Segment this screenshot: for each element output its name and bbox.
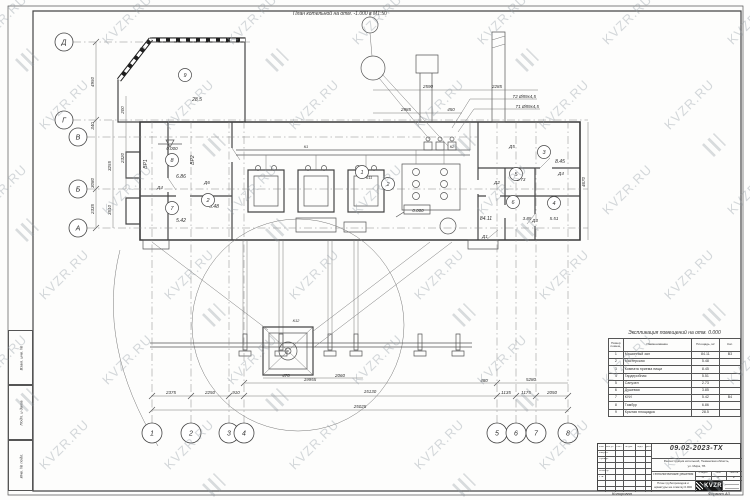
dimension-text: 1135 [501,390,511,395]
plan-label: Д4 [156,185,163,190]
dimension-text: 2060 [334,373,346,378]
axis-label-8: 8 [566,431,570,438]
stage-value: П [695,476,711,480]
axis-label-2: 2 [188,431,193,438]
stage-header: Лист [711,472,726,475]
room-tag-number: 1 [360,170,363,176]
explication-cell: 28.5 [692,410,720,417]
stamp-strip-box: Подп. и дата [8,385,33,440]
kvzr-logo-text: KVZR [704,483,722,489]
revision-header-cell: № док. [623,446,635,449]
axis-label-Б: Б [76,187,81,194]
explication-cell [720,374,741,381]
plan-label: ВР2 [190,155,196,165]
explication-grid: Номер помещ.НаименованиеПлощадь, м²Кат.1… [608,338,741,417]
explication-cell [720,402,741,409]
dimension-text: 2320 [120,152,125,164]
stamp-strip-box: Инв. № подл. [8,440,33,491]
explication-cell: 5.51 [692,374,720,381]
dimension-text: 480 [480,378,488,383]
explication-cell: 8 [609,402,624,409]
explication-cell: Кат. [720,338,741,352]
explication-cell: 6 [609,388,624,395]
dimension-text: 2335 [90,203,95,215]
stage-value: 2 [711,476,726,480]
dimension-text: 3255 [107,160,112,171]
explication-cell [720,381,741,388]
document-number: 09.02-2023-ТХ [651,445,742,458]
dimension-text: 3510 [107,204,112,215]
explication-cell: Мастерская [624,359,692,366]
dimension-text: 15130 [364,389,377,394]
explication-cell: 7 [609,395,624,402]
drawing-name-line1: План трубопроводов и [652,482,694,485]
plan-label: КВ [139,46,144,51]
dimension-text: 2250 [204,390,216,395]
axis-label-4: 4 [242,431,246,438]
explication-cell: 5.42 [692,395,720,402]
plan-label: Д3 [531,218,538,223]
dimension-text: 200 [120,106,125,115]
explication-cell: Душевая [624,388,692,395]
plan-label: Д2 [493,180,500,185]
plan-label: Д6 [203,180,210,185]
axis-label-В: В [76,135,81,142]
explication-row: 3Комната приема пищи8.45 [608,366,741,373]
plan-label: Т1 Ø89х4,5 [515,104,539,109]
object-name-line2: ул. Мира, 7Б [652,465,741,468]
plan-label: Т2 Ø89х4,5 [512,94,536,99]
explication-cell: 5.48 [692,359,720,366]
plan-label: 0.000 [412,208,424,213]
explication-cell: Тамбур [624,402,692,409]
plan-label: 0.000 [166,146,178,151]
object-name-line1: Реконструкция котельной, Тюменская облас… [652,460,741,463]
plan-label: К12 [293,318,301,323]
plan-label: 28.5 [191,97,202,103]
explication-cell: Гардеробная [624,374,692,381]
explication-title: Экспликация помещений на отм. 0.000 [608,330,741,336]
plan-label: 5.51 [550,216,559,221]
room-tag-number: 2 [385,182,389,188]
explication-row: 9Крытая площадка28.5 [608,410,741,417]
axis-label-3: 3 [227,431,231,438]
revision-header-cell: Изм. [598,446,605,449]
explication-cell: Крытая площадка [624,410,692,417]
explication-cell: 5 [609,381,624,388]
signature-row-label: Утв. [599,476,615,479]
kvzr-logo-stripes [696,482,703,490]
plan-label: К1 [304,144,309,149]
stamp-strip-label: Инв. № подл. [18,453,23,478]
explication-cell: 9 [609,410,624,417]
copied-note: Копировал [612,491,632,496]
explication-cell: Площадь, м² [692,338,720,352]
dimension-text: 2375 [165,390,177,395]
plan-label: 3.85 [523,216,532,221]
explication-cell: Санузел [624,381,692,388]
explication-cell: В4 [720,395,741,402]
plan-label: 5.42 [176,218,186,224]
explication-cell: 4 [609,374,624,381]
plan-label: ВР1 [143,159,149,169]
plan-canvas: ДГВБА12345678 49503403080233532553510200… [0,0,750,500]
explication-cell: 8.45 [692,366,720,373]
plan-label: К2 [450,144,455,149]
revision-header-cell: Кол.уч. [605,446,615,449]
stage-header: Стадия [695,472,711,475]
dimension-text: 5280 [526,377,537,382]
explication-row: 6Душевая3.85 [608,388,741,395]
signature-row-label: Разраб. [599,452,615,455]
room-tag-number: 9 [183,73,186,79]
stamp-strip-label: Подп. и дата [18,400,23,425]
boiler-equipment [236,122,470,234]
dimension-text: 910 [232,390,240,395]
dimension-text: 340 [90,122,95,130]
stamp-strip-label: Взам. инв. № [18,345,23,370]
explication-cell: В3 [720,352,741,359]
axis-label-А: А [75,226,81,233]
room-tag-number: 4 [552,201,555,207]
explication-cell: Номер помещ. [609,338,624,352]
signature-row-label: Н.контр. [599,470,615,473]
dimension-text: 450 [447,107,455,112]
explication-row: Номер помещ.НаименованиеПлощадь, м²Кат. [608,338,741,352]
dimension-text: 470 [282,373,290,378]
explication-cell [720,388,741,395]
room-explication-table: Экспликация помещений на отм. 0.000 Номе… [608,330,741,417]
room-tag-number: 2 [205,198,209,204]
explication-cell: Комната приема пищи [624,366,692,373]
explication-row: 7КУИ5.42В4 [608,395,741,402]
explication-cell: 1 [609,352,624,359]
explication-row: 5Санузел2.73 [608,381,741,388]
explication-cell: 3.85 [692,388,720,395]
plan-label: 6.86 [176,174,186,180]
explication-cell: 2.73 [692,381,720,388]
plan-label: 84.11 [480,216,492,222]
explication-row: 1Машинный зал84.11В3 [608,352,741,359]
axis-label-Д: Д [61,40,67,47]
axis-label-1: 1 [150,431,154,438]
drawing-title: План котельной на отм. -1.000 в М1:50 [255,11,425,17]
revision-header-cell: Подп. [635,446,645,449]
explication-cell: 2 [609,359,624,366]
drawing-sheet: ДГВБА12345678 49503403080233532553510200… [0,0,750,500]
dimension-text: 4950 [90,76,95,87]
dimension-text: 2285 [491,84,503,89]
dimension-text: 2050 [546,390,558,395]
plan-label: Д1 [481,234,488,239]
stage-value: 2 [726,476,742,480]
dimension-text: 19955 [304,377,317,382]
outdoor-works [113,219,472,446]
explication-cell: 84.11 [692,352,720,359]
dimension-text: 1175 [521,390,531,395]
plan-label: 8.45 [555,159,565,165]
signature-row-label: Провер. [599,458,615,461]
drawing-name-line2: арматуры на отметку 0.000 [652,486,694,489]
revision-header-cell: Лист [615,446,623,449]
explication-cell: Наименование [624,338,692,352]
stage-header: Листов [726,472,742,475]
explication-cell: КУИ [624,395,692,402]
explication-row: 4Гардеробная5.51 [608,374,741,381]
format-note: Формат А3 [708,491,730,496]
explication-cell [720,359,741,366]
explication-cell: 3 [609,366,624,373]
dimension-text: 25025 [353,404,367,409]
axis-label-5: 5 [495,431,499,438]
stamp-strip-box: Взам. инв. № [8,330,33,385]
kvzr-logo: KVZR [696,481,722,491]
explication-row: 2Мастерская5.48 [608,359,741,366]
plan-label: Д5 [508,144,515,149]
dimension-text: 2985 [400,107,412,112]
explication-cell [720,366,741,373]
explication-cell [720,410,741,417]
dimension-text: 4670 [581,176,586,187]
axis-label-6: 6 [514,431,518,438]
dimension-text: 2590 [422,84,434,89]
explication-cell: 6.86 [692,402,720,409]
plan-label: Д4 [557,171,564,176]
title-block: Изм.Кол.уч.Лист№ док.Подп.ДатаРазраб.Про… [597,443,741,491]
explication-cell: Машинный зал [624,352,692,359]
explication-row: 8Тамбур6.86 [608,402,741,409]
dimension-text: 3080 [90,177,95,188]
section-name: Технологические решения [652,473,694,477]
